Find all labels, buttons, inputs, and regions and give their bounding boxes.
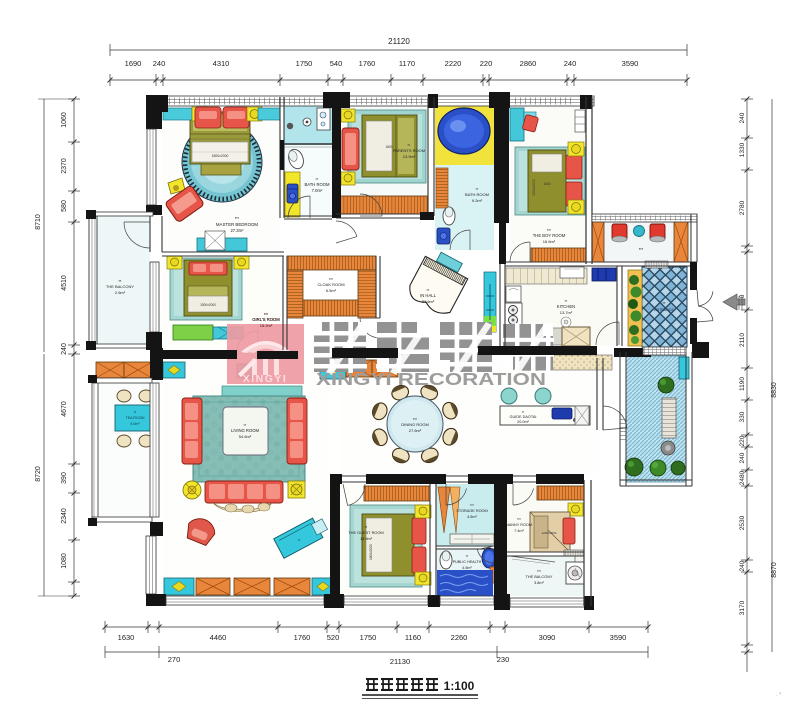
svg-text:1500x2000: 1500x2000 [200,303,216,307]
svg-text:GIRL'S ROOM: GIRL'S ROOM [252,317,280,322]
svg-text:220: 220 [739,435,746,446]
svg-text:▪▪▪: ▪▪▪ [329,277,334,281]
svg-text:8830: 8830 [771,382,778,398]
svg-text:▪▪▪: ▪▪▪ [517,517,521,521]
svg-text:1750: 1750 [296,59,313,68]
svg-text:2340: 2340 [61,508,68,524]
svg-text:2.6m²: 2.6m² [115,290,126,295]
svg-text:390: 390 [61,472,68,484]
svg-text:THE GUEST ROOM: THE GUEST ROOM [348,530,383,535]
svg-text:3170: 3170 [739,600,746,615]
svg-text:LIVING ROOM: LIVING ROOM [231,428,259,433]
svg-text:2110: 2110 [739,333,746,347]
svg-text:270: 270 [168,655,181,664]
svg-text:1800: 1800 [385,145,392,149]
svg-text:240: 240 [153,59,166,68]
svg-text:7.0m²: 7.0m² [312,188,323,193]
svg-text:580: 580 [61,200,68,212]
svg-text:IN HALL: IN HALL [420,293,436,298]
svg-text:21.6m²: 21.6m² [422,299,435,304]
svg-text:1080: 1080 [61,553,68,569]
svg-text:6.5m²: 6.5m² [326,288,337,293]
svg-text:330: 330 [739,411,746,422]
svg-text:4670: 4670 [61,401,68,417]
svg-text:9.2m²: 9.2m² [472,198,483,203]
svg-text:8720: 8720 [35,466,42,482]
svg-text:▪▪: ▪▪ [522,410,525,414]
svg-text:4510: 4510 [61,275,68,291]
svg-text:TEA ROOM: TEA ROOM [126,416,145,420]
svg-text:1630: 1630 [118,633,135,642]
svg-text:▪▪▪: ▪▪▪ [537,569,541,573]
svg-text:4310: 4310 [213,59,230,68]
svg-text:▪▪▪: ▪▪▪ [413,417,418,421]
svg-text:21120: 21120 [388,37,410,46]
svg-text:520: 520 [327,633,340,642]
svg-text:240: 240 [61,343,68,355]
svg-text:1170: 1170 [399,59,415,68]
svg-text:21130: 21130 [390,657,410,666]
svg-text:1330: 1330 [739,142,746,157]
svg-text:3590: 3590 [610,633,627,642]
svg-text:1:100: 1:100 [444,679,475,693]
svg-text:4460: 4460 [210,633,227,642]
svg-text:1800x2000: 1800x2000 [212,154,229,158]
svg-text:240: 240 [564,59,577,68]
svg-text:4.5m²: 4.5m² [462,566,472,570]
svg-text:1190: 1190 [739,377,746,391]
svg-text:▪▪▪: ▪▪▪ [235,215,240,220]
svg-text:· ″: · ″ [775,693,782,699]
svg-text:3090: 3090 [539,633,556,642]
svg-text:THE BOY ROOM: THE BOY ROOM [533,233,566,238]
svg-text:▪▪▪: ▪▪▪ [264,312,269,316]
svg-text:540: 540 [330,59,343,68]
svg-text:1500x2000: 1500x2000 [532,179,536,196]
svg-text:2370: 2370 [61,158,68,174]
svg-text:13.9m²: 13.9m² [360,536,373,541]
svg-text:27.3m²: 27.3m² [230,228,244,233]
svg-text:240: 240 [739,112,746,123]
svg-text:PUBLIC HEALTH: PUBLIC HEALTH [453,560,482,564]
svg-text:9.0m²: 9.0m² [130,422,140,426]
svg-text:240: 240 [739,560,746,571]
svg-text:1500: 1500 [543,182,550,186]
svg-text:1690: 1690 [125,59,142,68]
svg-text:XINGYI: XINGYI [243,373,288,385]
svg-text:220: 220 [480,59,493,68]
svg-text:▪▪▪: ▪▪▪ [547,228,552,232]
svg-text:3590: 3590 [622,59,639,68]
svg-text:THE BALCONY: THE BALCONY [106,284,135,289]
svg-text:▪▪: ▪▪ [466,554,469,558]
svg-text:DINING ROOM: DINING ROOM [401,422,429,427]
svg-text:1760: 1760 [294,633,311,642]
svg-text:1200x2000: 1200x2000 [542,531,557,535]
svg-text:8710: 8710 [35,214,42,230]
svg-text:▪▪▪: ▪▪▪ [470,503,474,507]
svg-text:XINGYI RECORATION: XINGYI RECORATION [316,369,546,389]
svg-text:27.6m²: 27.6m² [409,428,422,433]
svg-text:4.5m²: 4.5m² [467,515,477,519]
svg-text:KITCHEN: KITCHEN [557,304,575,309]
svg-text:1750: 1750 [360,633,377,642]
svg-text:230: 230 [497,655,510,664]
svg-text:2220: 2220 [445,59,462,68]
svg-text:ENTRANCE: ENTRANCE [654,308,674,312]
svg-text:7.4m²: 7.4m² [514,529,524,533]
svg-text:20.0m²: 20.0m² [517,420,530,424]
svg-text:15.2m²: 15.2m² [260,323,273,328]
svg-text:8870: 8870 [771,562,778,578]
svg-text:BATH ROOM: BATH ROOM [465,192,489,197]
svg-text:BATH ROOM: BATH ROOM [304,182,330,187]
svg-text:13.9m²: 13.9m² [403,154,416,159]
svg-text:CLOAK ROOM: CLOAK ROOM [317,282,344,287]
svg-text:1160: 1160 [405,633,421,642]
svg-text:MASTER BEDROOM: MASTER BEDROOM [216,222,259,227]
svg-text:54.6m²: 54.6m² [239,434,252,439]
svg-text:13.7m²: 13.7m² [560,310,573,315]
svg-text:1060: 1060 [61,112,68,128]
svg-text:THE BALCONY: THE BALCONY [526,575,553,579]
svg-text:1760: 1760 [359,59,376,68]
svg-text:240: 240 [739,452,746,463]
svg-text:2480: 2480 [739,470,746,485]
svg-text:NANNY ROOM: NANNY ROOM [506,523,532,527]
svg-text:2780: 2780 [739,200,746,215]
svg-text:GUIDE DAOTAI: GUIDE DAOTAI [510,415,537,419]
svg-text:STORAGE ROOM: STORAGE ROOM [456,509,487,513]
svg-text:▪▪: ▪▪ [134,410,137,414]
svg-text:2530: 2530 [739,515,746,530]
svg-text:PARENTS ROOM: PARENTS ROOM [393,148,425,153]
svg-text:2860: 2860 [520,59,537,68]
svg-text:2260: 2260 [451,633,468,642]
svg-text:1800x2000: 1800x2000 [369,544,373,560]
svg-text:▪▪▪: ▪▪▪ [639,246,644,251]
svg-text:16.6m²: 16.6m² [543,239,556,244]
svg-text:3.8m²: 3.8m² [534,581,544,585]
